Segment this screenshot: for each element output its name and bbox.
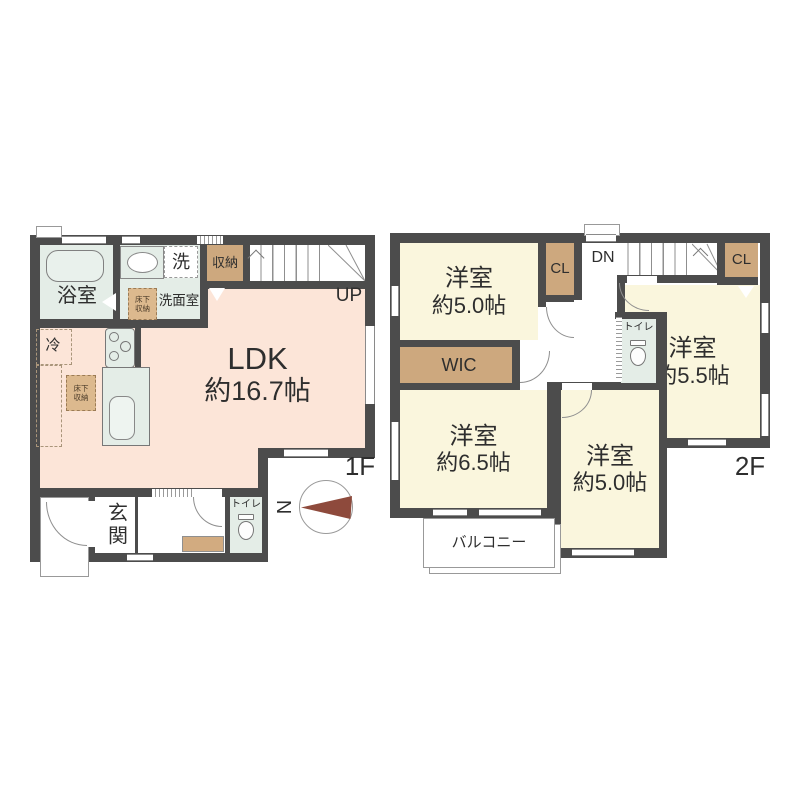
door-opening (193, 489, 222, 497)
window (572, 549, 634, 556)
wall (546, 295, 574, 302)
entrance-name: 玄関 (104, 502, 127, 548)
bedroom-sw-size: 約6.5帖 (436, 450, 511, 475)
wall (717, 277, 758, 285)
ldk-label: LDK 約16.7帖 (150, 338, 365, 410)
kitchen-sink (109, 396, 135, 440)
wall (400, 340, 520, 347)
bathroom-label: 浴室 (48, 283, 106, 309)
wall (538, 243, 546, 307)
window (479, 509, 541, 516)
window (761, 303, 769, 333)
stair-fan (328, 245, 365, 281)
door-opening (627, 276, 657, 283)
window (122, 236, 140, 244)
wall (135, 327, 141, 369)
bedroom-nw: 洋室 約5.0帖 (400, 243, 538, 340)
bathtub (46, 250, 104, 282)
washer-label: 洗 (164, 246, 198, 278)
entrance-step (182, 536, 224, 552)
underfloor-storage: 床下収納 (66, 375, 96, 411)
stove-burner (120, 341, 131, 352)
bedroom-nw-size: 約5.0帖 (432, 293, 507, 318)
toilet-tank (630, 340, 646, 346)
window (391, 422, 399, 480)
wall (659, 312, 667, 558)
window (761, 394, 769, 436)
bedroom-e-name: 洋室 (669, 335, 717, 363)
washbasin (127, 252, 158, 273)
window (197, 236, 223, 244)
bedroom-sw: 洋室 約6.5帖 (400, 390, 547, 508)
stove-burner (109, 332, 119, 342)
bedroom-nw-name: 洋室 (445, 265, 493, 293)
window (284, 449, 328, 457)
bedroom-s-name: 洋室 (586, 443, 634, 471)
door-opening (538, 307, 546, 338)
window (127, 554, 153, 561)
bedroom-sw-name: 洋室 (450, 423, 498, 451)
window (433, 509, 467, 516)
ldk-name: LDK (227, 341, 287, 377)
wall (574, 243, 582, 300)
closet-a: CL (546, 243, 574, 295)
wic: WIC (400, 347, 518, 383)
toilet-bowl (238, 521, 254, 540)
wall (30, 488, 268, 497)
closet-b: CL (725, 243, 758, 277)
washroom-label: 洗面室 (150, 292, 208, 309)
stairs-down-label: DN (584, 248, 622, 268)
balcony: バルコニー (423, 518, 555, 568)
window (586, 234, 616, 242)
ldk-size: 約16.7帖 (204, 376, 311, 407)
floor-label-2f: 2F (730, 452, 770, 482)
toilet-bowl (630, 347, 646, 366)
front-door-opening (87, 501, 95, 547)
toilet-label-1f: トイレ (230, 499, 262, 511)
fridge-label: 冷 (36, 329, 70, 363)
floorplan-canvas: 収納 UP 冷 床下収納 床下収納 浴室 洗 洗面室 LDK 約16.7帖 玄関 (0, 0, 800, 800)
toilet-icon (630, 340, 646, 366)
stove-burner (109, 351, 119, 361)
window (391, 286, 399, 316)
floor-label-1f: 1F (340, 452, 380, 482)
window (62, 236, 106, 244)
sliding-opening (152, 489, 193, 497)
wall (30, 319, 208, 328)
toilet-tank (238, 514, 254, 520)
entrance-label: 玄関 (95, 497, 135, 553)
storage-label: 収納 (207, 245, 243, 281)
toilet-icon (238, 514, 254, 540)
wall (400, 383, 520, 390)
stairs-up-label: UP (329, 285, 369, 307)
wall (243, 245, 250, 281)
exterior-box (36, 226, 62, 238)
window (688, 439, 726, 446)
compass-north-label: N (274, 496, 296, 518)
wall (113, 245, 120, 327)
bedroom-s-size: 約5.0帖 (573, 470, 648, 495)
pantry-space (36, 365, 62, 447)
door-opening (562, 383, 592, 390)
toilet-label-2f: トイレ (621, 322, 656, 334)
window (365, 326, 375, 404)
